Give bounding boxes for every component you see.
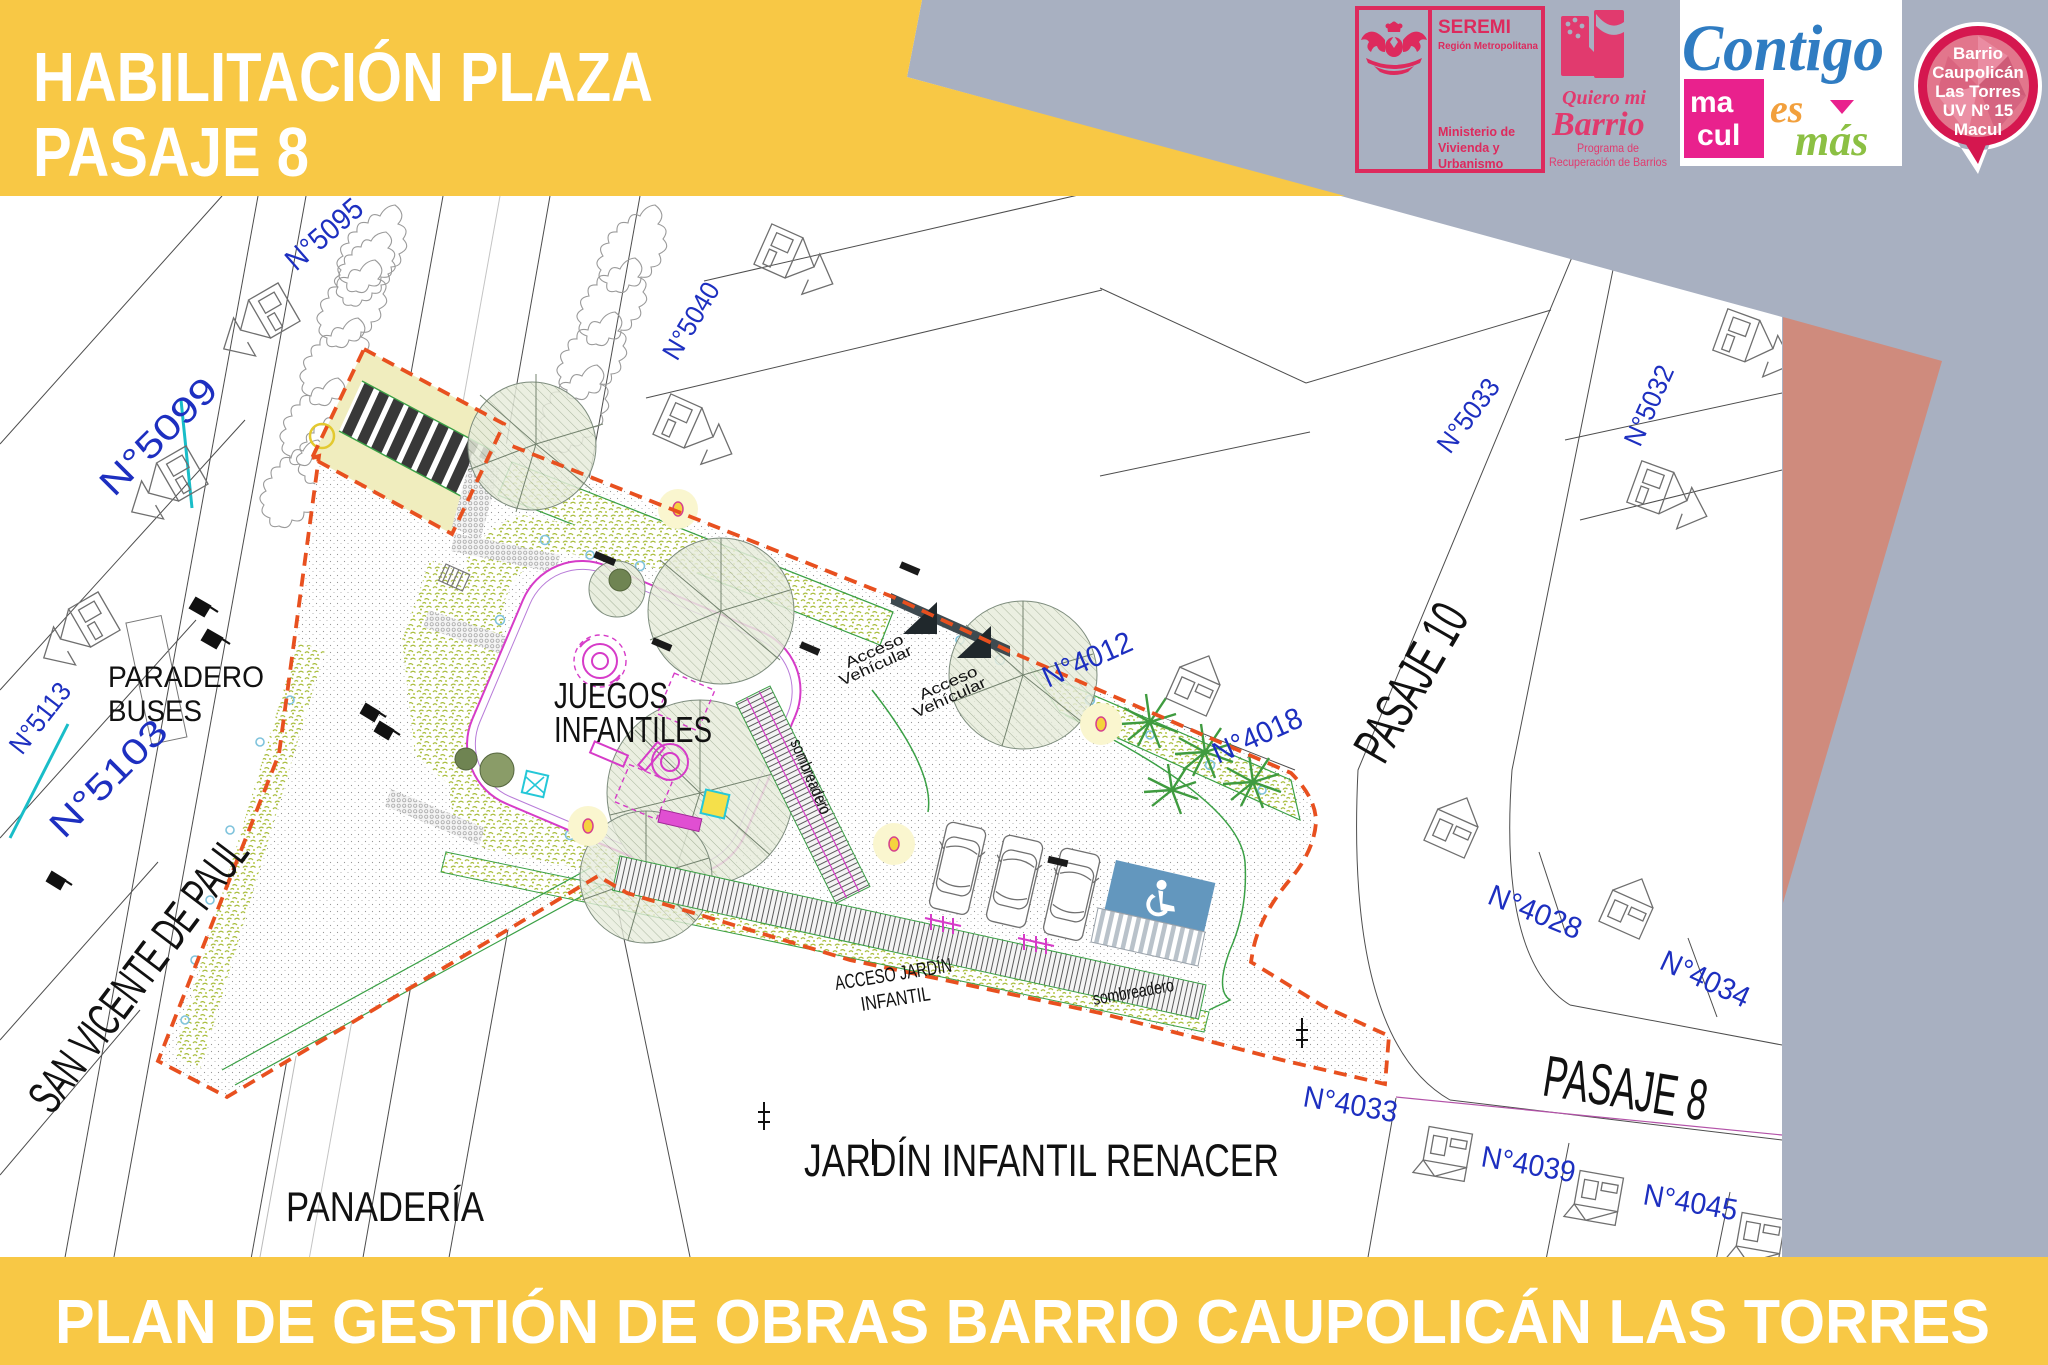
svg-text:UV Nº 15: UV Nº 15 (1943, 101, 2013, 120)
svg-text:Caupolicán: Caupolicán (1932, 63, 2024, 82)
svg-text:JARDÍN INFANTIL RENACER: JARDÍN INFANTIL RENACER (804, 1135, 1279, 1186)
svg-text:INFANTILES: INFANTILES (554, 709, 712, 750)
svg-text:PANADERÍA: PANADERÍA (286, 1183, 484, 1230)
svg-text:más: más (1795, 116, 1868, 165)
svg-text:Recuperación de Barrios: Recuperación de Barrios (1549, 155, 1667, 169)
svg-text:Región Metropolitana: Región Metropolitana (1438, 40, 1538, 52)
svg-text:cul: cul (1697, 119, 1740, 152)
svg-text:Vivienda y: Vivienda y (1438, 141, 1500, 155)
svg-text:PARADERO: PARADERO (108, 661, 264, 694)
svg-text:Programa de: Programa de (1577, 141, 1639, 155)
svg-text:Urbanismo: Urbanismo (1438, 157, 1504, 171)
svg-text:Ministerio de: Ministerio de (1438, 125, 1515, 139)
svg-text:Barrio: Barrio (1551, 106, 1645, 143)
svg-text:HABILITACIÓN PLAZA: HABILITACIÓN PLAZA (33, 38, 653, 116)
svg-text:Barrio: Barrio (1953, 44, 2003, 63)
svg-text:Macul: Macul (1954, 120, 2002, 139)
svg-text:Contigo: Contigo (1682, 12, 1884, 85)
svg-text:PLAN DE GESTIÓN DE OBRAS B: PLAN DE GESTIÓN DE OBRAS BARRIO CAUPOLIC… (55, 1288, 1990, 1357)
svg-text:PASAJE 8: PASAJE 8 (33, 113, 309, 191)
svg-text:ma: ma (1690, 86, 1734, 119)
svg-text:SEREMI: SEREMI (1438, 17, 1511, 38)
svg-text:Las Torres: Las Torres (1935, 82, 2021, 101)
